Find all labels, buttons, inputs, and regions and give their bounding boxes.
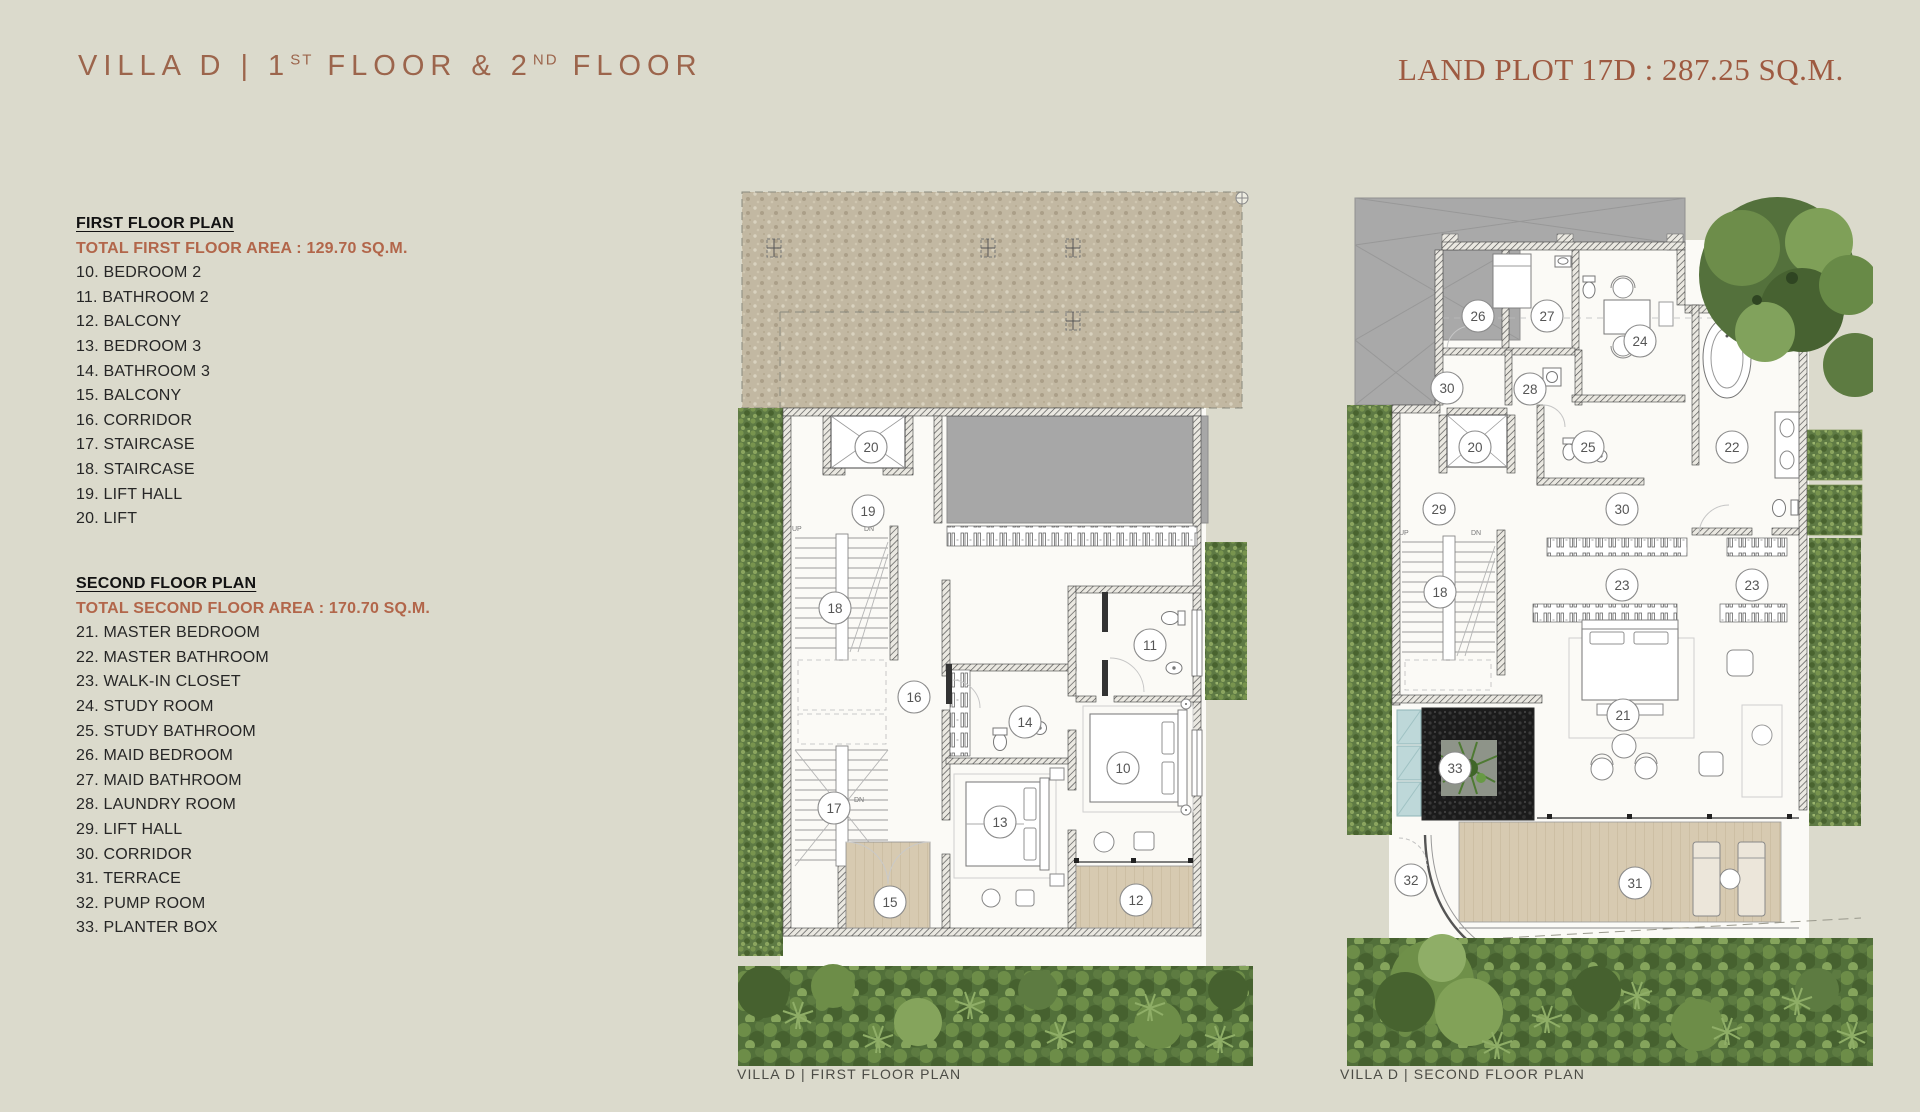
svg-text:18: 18 (1432, 585, 1447, 600)
svg-text:12: 12 (1128, 893, 1143, 908)
hedge-left (1347, 405, 1392, 835)
room-label-18: 18 (819, 592, 851, 624)
room-label-24: 24 (1624, 325, 1656, 357)
legend-item: 31. TERRACE (76, 867, 430, 892)
room-label-20: 20 (1459, 431, 1491, 463)
svg-text:31: 31 (1627, 876, 1642, 891)
hedge-pad-right-2 (1807, 485, 1862, 535)
room-label-30b: 30 (1606, 493, 1638, 525)
legend-item: 15. BALCONY (76, 384, 408, 409)
legend-item: 28. LAUNDRY ROOM (76, 793, 430, 818)
survey-marker (1236, 192, 1248, 204)
svg-text:23: 23 (1614, 578, 1629, 593)
room-label-19: 19 (852, 495, 884, 527)
first-plan-caption: VILLA D | FIRST FLOOR PLAN (737, 1066, 961, 1082)
legend-item: 10. BEDROOM 2 (76, 261, 408, 286)
legend-item: 17. STAIRCASE (76, 433, 408, 458)
room-label-30a: 30 (1431, 372, 1463, 404)
room-label-17: 17 (818, 792, 850, 824)
svg-text:26: 26 (1470, 309, 1485, 324)
roof-gray-area (947, 416, 1208, 523)
gravel-driveway (742, 192, 1242, 408)
svg-text:24: 24 (1632, 334, 1648, 349)
legend-item: 24. STUDY ROOM (76, 695, 430, 720)
legend-second-heading: SECOND FLOOR PLAN (76, 572, 430, 597)
legend-item: 13. BEDROOM 3 (76, 335, 408, 360)
room-label-14: 14 (1009, 706, 1041, 738)
svg-text:15: 15 (882, 895, 897, 910)
legend-first-heading: FIRST FLOOR PLAN (76, 212, 408, 237)
legend-item: 22. MASTER BATHROOM (76, 646, 430, 671)
legend-item: 27. MAID BATHROOM (76, 769, 430, 794)
room-label-11: 11 (1134, 629, 1166, 661)
room-label-23b: 23 (1736, 569, 1768, 601)
legend-item: 12. BALCONY (76, 310, 408, 335)
svg-text:22: 22 (1724, 440, 1739, 455)
legend-item: 25. STUDY BATHROOM (76, 720, 430, 745)
garden-trees-bottom (1347, 934, 1873, 1066)
legend-item: 21. MASTER BEDROOM (76, 621, 430, 646)
page-title: VILLA D | 1ST FLOOR & 2ND FLOOR (78, 50, 703, 83)
svg-text:30: 30 (1439, 381, 1454, 396)
floor-plan-sheet: VILLA D | 1ST FLOOR & 2ND FLOOR LAND PLO… (0, 0, 1920, 1112)
svg-text:25: 25 (1580, 440, 1595, 455)
legend-first-floor: FIRST FLOOR PLAN TOTAL FIRST FLOOR AREA … (76, 212, 408, 532)
room-label-23a: 23 (1606, 569, 1638, 601)
svg-text:13: 13 (992, 815, 1007, 830)
closet-column (950, 670, 970, 756)
svg-text:28: 28 (1522, 382, 1537, 397)
wardrobe-row (947, 526, 1197, 546)
svg-text:17: 17 (826, 801, 841, 816)
hedge-left (738, 408, 783, 956)
stair-dn-label: DN (854, 797, 864, 804)
svg-text:20: 20 (863, 440, 878, 455)
room-label-33: 33 (1439, 752, 1471, 784)
svg-text:27: 27 (1539, 309, 1554, 324)
room-label-21: 21 (1607, 699, 1639, 731)
second-plan-caption: VILLA D | SECOND FLOOR PLAN (1340, 1066, 1585, 1082)
hedge-right (1205, 542, 1247, 700)
room-label-18: 18 (1424, 576, 1456, 608)
svg-text:32: 32 (1403, 873, 1418, 888)
svg-text:16: 16 (906, 690, 921, 705)
second-floor-plan-drawing: UP DN (1347, 190, 1873, 1070)
room-label-32: 32 (1395, 864, 1427, 896)
room-label-22: 22 (1716, 431, 1748, 463)
svg-text:23: 23 (1744, 578, 1759, 593)
svg-text:30: 30 (1614, 502, 1629, 517)
room-label-13: 13 (984, 806, 1016, 838)
legend-item: 23. WALK-IN CLOSET (76, 670, 430, 695)
room-label-15: 15 (874, 886, 906, 918)
svg-text:18: 18 (827, 601, 842, 616)
hedge-pad-right-1 (1807, 430, 1862, 480)
room-label-27: 27 (1531, 300, 1563, 332)
legend-item: 29. LIFT HALL (76, 818, 430, 843)
legend-item: 18. STAIRCASE (76, 458, 408, 483)
legend-item: 14. BATHROOM 3 (76, 360, 408, 385)
room-label-10: 10 (1107, 752, 1139, 784)
first-floor-plan-drawing: UP DN DN (738, 190, 1263, 1070)
svg-text:21: 21 (1615, 708, 1630, 723)
stair-up-label: UP (1399, 530, 1409, 537)
garden-trees-bottom (738, 964, 1253, 1066)
room-label-20: 20 (855, 431, 887, 463)
svg-text:10: 10 (1115, 761, 1130, 776)
svg-text:14: 14 (1017, 715, 1033, 730)
land-plot-title: LAND PLOT 17D : 287.25 SQ.M. (1398, 52, 1844, 88)
legend-first-area: TOTAL FIRST FLOOR AREA : 129.70 SQ.M. (76, 237, 408, 262)
legend-item: 20. LIFT (76, 507, 408, 532)
legend-item: 16. CORRIDOR (76, 409, 408, 434)
legend-item: 26. MAID BEDROOM (76, 744, 430, 769)
legend-item: 19. LIFT HALL (76, 483, 408, 508)
legend-second-floor: SECOND FLOOR PLAN TOTAL SECOND FLOOR ARE… (76, 572, 430, 941)
room-label-16: 16 (898, 681, 930, 713)
legend-item: 30. CORRIDOR (76, 843, 430, 868)
svg-text:33: 33 (1447, 761, 1462, 776)
laundry-fixtures (1543, 368, 1561, 386)
room-label-31: 31 (1619, 867, 1651, 899)
svg-text:19: 19 (860, 504, 875, 519)
svg-text:29: 29 (1431, 502, 1446, 517)
stair-up-label: UP (792, 526, 802, 533)
svg-text:20: 20 (1467, 440, 1482, 455)
legend-item: 32. PUMP ROOM (76, 892, 430, 917)
room-label-29: 29 (1423, 493, 1455, 525)
svg-text:11: 11 (1143, 638, 1157, 653)
legend-item: 33. PLANTER BOX (76, 916, 430, 941)
room-label-26: 26 (1462, 300, 1494, 332)
room-label-12: 12 (1120, 884, 1152, 916)
hedge-right-lower (1809, 538, 1861, 826)
room-label-28: 28 (1514, 373, 1546, 405)
legend-item: 11. BATHROOM 2 (76, 286, 408, 311)
room-label-25: 25 (1572, 431, 1604, 463)
legend-second-area: TOTAL SECOND FLOOR AREA : 170.70 SQ.M. (76, 597, 430, 622)
stair-dn-label: DN (1471, 530, 1481, 537)
